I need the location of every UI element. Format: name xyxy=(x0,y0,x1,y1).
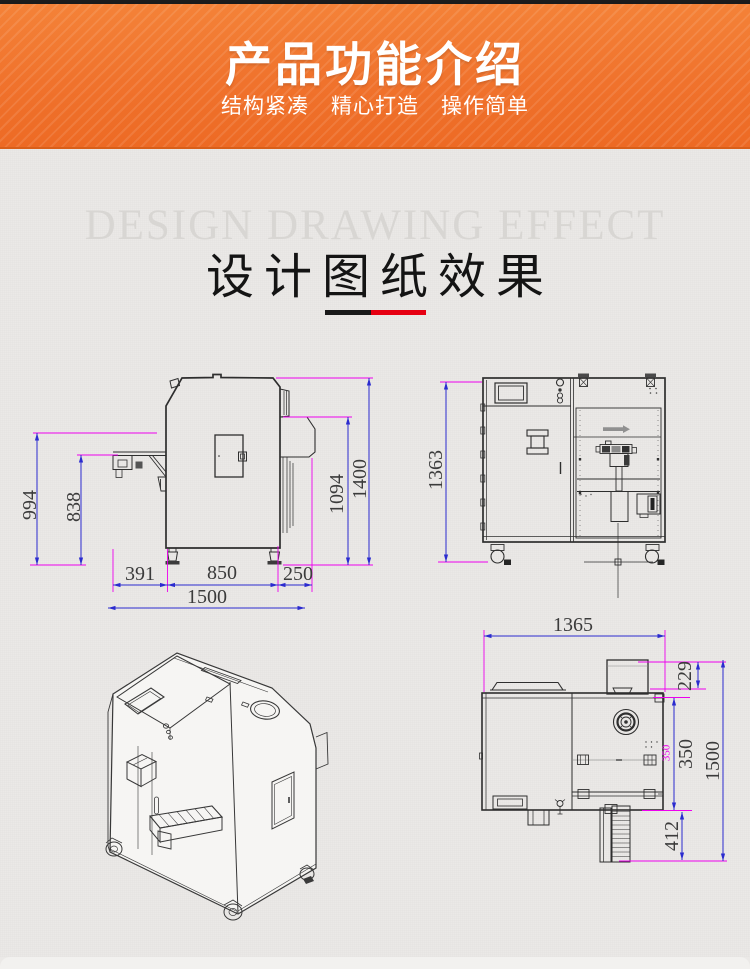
front-dimension-labels: 1363 xyxy=(425,450,447,490)
side-dimension-arrows xyxy=(35,378,371,610)
front-machine-sketch xyxy=(481,374,665,599)
dim-1400: 1400 xyxy=(349,459,371,499)
side-dimension-lines xyxy=(37,378,369,608)
dim-850: 850 xyxy=(207,562,237,584)
dim-994: 994 xyxy=(19,490,41,520)
dim-250: 250 xyxy=(283,563,313,585)
side-view-drawing: 994 838 1094 1400 391 850 250 1500 xyxy=(19,375,373,611)
iso-view-drawing xyxy=(106,653,328,920)
dim-350: 350 xyxy=(675,739,697,769)
front-view-drawing: 1363 xyxy=(425,374,665,599)
dim-1500-top: 1500 xyxy=(702,741,724,781)
side-dimension-labels: 994 838 1094 1400 391 850 250 1500 xyxy=(19,459,371,608)
dim-1094: 1094 xyxy=(326,474,348,514)
dim-350-small: 350 xyxy=(661,744,673,761)
dim-1500: 1500 xyxy=(187,586,227,608)
top-dimension-labels: 1365 229 350 412 1500 350 xyxy=(553,614,724,851)
product-detail-page: 产品功能介绍 结构紧凑 精心打造 操作简单 DESIGN DRAWING EFF… xyxy=(0,0,750,969)
next-section-strip xyxy=(0,957,750,969)
dim-391: 391 xyxy=(125,563,155,585)
technical-drawings: 994 838 1094 1400 391 850 250 1500 xyxy=(0,0,750,969)
side-machine-sketch xyxy=(113,375,315,565)
dim-1365: 1365 xyxy=(553,614,593,636)
top-machine-sketch xyxy=(480,660,665,862)
dim-229: 229 xyxy=(674,661,696,691)
dim-412: 412 xyxy=(661,821,683,851)
dim-838: 838 xyxy=(63,492,85,522)
top-view-drawing: 1365 229 350 412 1500 350 xyxy=(480,614,728,862)
dim-1363: 1363 xyxy=(425,450,447,490)
